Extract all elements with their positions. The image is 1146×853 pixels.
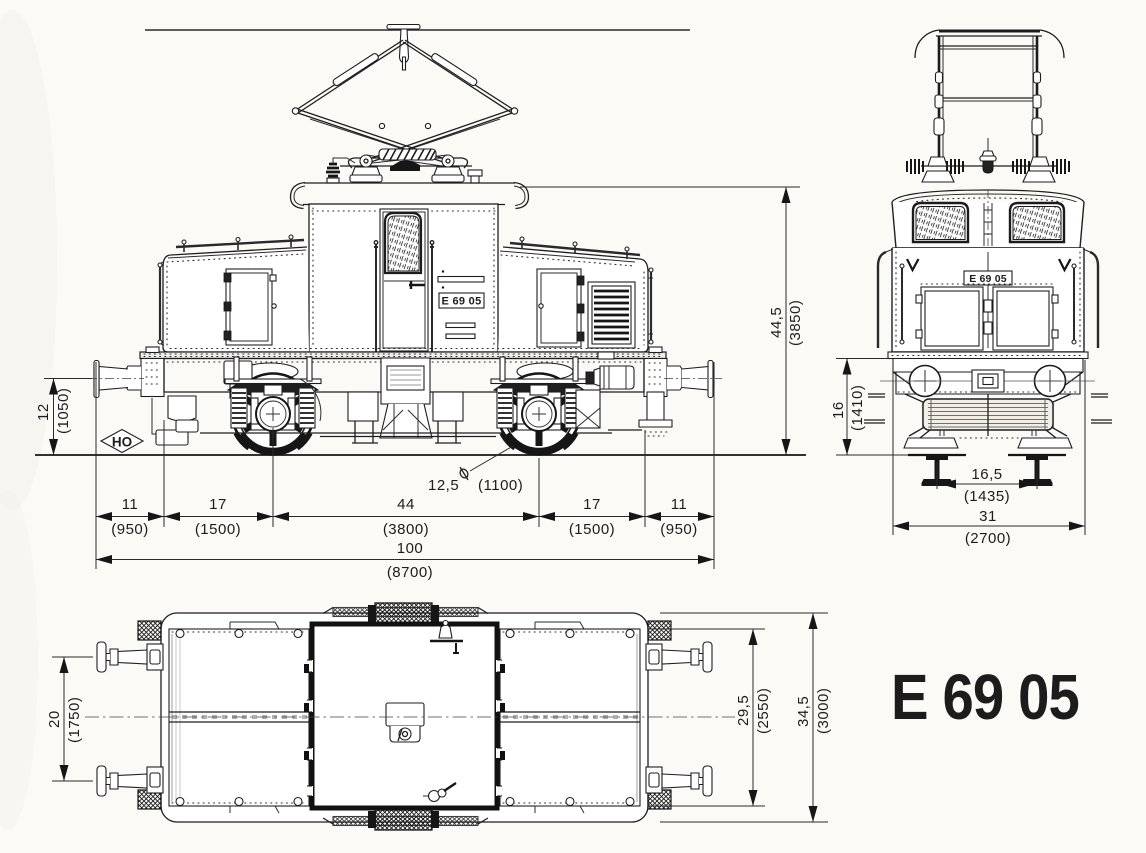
svg-text:(1050): (1050) bbox=[55, 388, 72, 434]
svg-text:20: 20 bbox=[46, 710, 63, 728]
svg-text:12,5: 12,5 bbox=[428, 477, 459, 494]
svg-text:11: 11 bbox=[122, 496, 139, 513]
svg-text:(2550): (2550) bbox=[755, 688, 772, 734]
svg-text:16,5: 16,5 bbox=[971, 466, 1002, 483]
svg-text:17: 17 bbox=[583, 496, 601, 513]
svg-text:17: 17 bbox=[209, 496, 227, 513]
svg-text:31: 31 bbox=[979, 508, 997, 525]
svg-text:E 69 05: E 69 05 bbox=[891, 661, 1079, 733]
svg-text:11: 11 bbox=[671, 496, 688, 513]
svg-text:(1750): (1750) bbox=[66, 697, 83, 743]
svg-text:(3800): (3800) bbox=[383, 521, 429, 538]
svg-text:(1435): (1435) bbox=[964, 488, 1010, 505]
svg-text:HO: HO bbox=[112, 435, 132, 450]
svg-text:E 69 05: E 69 05 bbox=[969, 273, 1007, 285]
svg-text:100: 100 bbox=[397, 540, 424, 557]
svg-text:(1500): (1500) bbox=[569, 521, 615, 538]
svg-text:(1500): (1500) bbox=[195, 521, 241, 538]
svg-text:(3000): (3000) bbox=[815, 688, 832, 734]
svg-text:(950): (950) bbox=[111, 521, 149, 538]
svg-text:(8700): (8700) bbox=[387, 564, 433, 581]
svg-text:34,5: 34,5 bbox=[795, 696, 812, 727]
svg-text:29,5: 29,5 bbox=[735, 695, 752, 726]
svg-text:(1410): (1410) bbox=[849, 385, 866, 431]
svg-text:44,5: 44,5 bbox=[768, 307, 785, 338]
svg-text:E 69 05: E 69 05 bbox=[441, 296, 481, 308]
svg-text:(950): (950) bbox=[660, 521, 698, 538]
svg-text:44: 44 bbox=[397, 496, 415, 513]
svg-text:12: 12 bbox=[35, 403, 52, 421]
svg-text:(2700): (2700) bbox=[965, 530, 1011, 547]
svg-text:(1100): (1100) bbox=[478, 477, 523, 494]
svg-text:(3850): (3850) bbox=[787, 300, 804, 346]
svg-text:16: 16 bbox=[830, 401, 847, 419]
